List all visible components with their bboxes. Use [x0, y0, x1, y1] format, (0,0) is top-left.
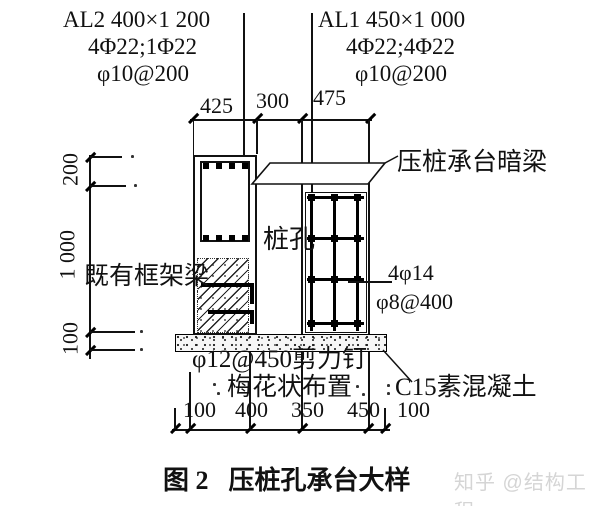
pile-hole-label: 桩孔	[263, 226, 291, 253]
dim-bottom-450: 450	[347, 398, 380, 421]
dim-bottom-100a: 100	[183, 398, 216, 421]
dim-bottom-350: 350	[291, 398, 324, 421]
centerline-dot	[217, 392, 220, 395]
watermark: 知乎 @结构工程	[454, 466, 601, 506]
centerline-dot	[362, 393, 365, 396]
dim-line-bottom	[172, 429, 390, 431]
hidden-beam-label: 压桩承台暗梁	[397, 150, 547, 176]
extension-line	[384, 408, 386, 429]
centerline-dot	[356, 385, 359, 388]
centerline-dot	[131, 155, 134, 158]
figure-canvas: AL2 400×1 200 4Φ22;1Φ22 φ10@200 AL1 450×…	[0, 0, 601, 506]
existing-beam-label: 既有框架梁	[84, 264, 209, 290]
centerline-dot	[134, 184, 137, 187]
centerline-dot	[387, 392, 390, 395]
shear-studs-label: φ12@450剪力钉	[192, 347, 367, 373]
bottom-bars-label: 4φ14	[388, 261, 434, 284]
dim-bottom-400: 400	[235, 398, 268, 421]
dim-bottom-100b: 100	[397, 398, 430, 421]
hidden-beam-slab	[252, 163, 385, 184]
extension-line	[174, 408, 176, 429]
centerline-dot	[387, 384, 390, 387]
bottom-bars-leader	[348, 281, 392, 283]
stirrups-label: φ8@400	[376, 290, 453, 313]
caption-number: 图 2	[163, 460, 209, 497]
centerline-dot	[213, 383, 216, 386]
centerline-dot	[140, 330, 143, 333]
centerline-dot	[140, 348, 143, 351]
caption-title: 压桩孔承台大样	[229, 460, 411, 497]
